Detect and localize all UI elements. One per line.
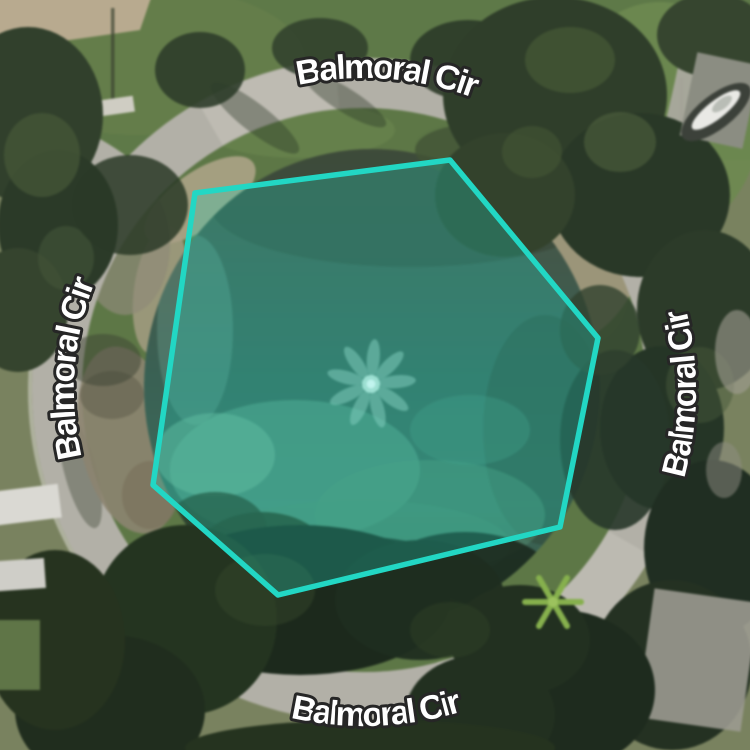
tree-canopy [155, 32, 245, 108]
tree-canopy [72, 155, 188, 255]
house-roof [0, 558, 46, 592]
canopy-highlight [410, 602, 490, 658]
ground-gap [706, 442, 742, 498]
driveway [636, 588, 750, 731]
canopy-highlight [4, 113, 80, 197]
canopy-highlight [502, 126, 562, 178]
satellite-map: Balmoral Cir Balmoral Cir Balmoral Cir B… [0, 0, 750, 750]
lawn-patch [0, 620, 40, 690]
fence-line [111, 8, 115, 103]
canopy-highlight [525, 27, 615, 93]
canopy-highlight [584, 112, 656, 172]
map-viewport[interactable]: Balmoral Cir Balmoral Cir Balmoral Cir B… [0, 0, 750, 750]
